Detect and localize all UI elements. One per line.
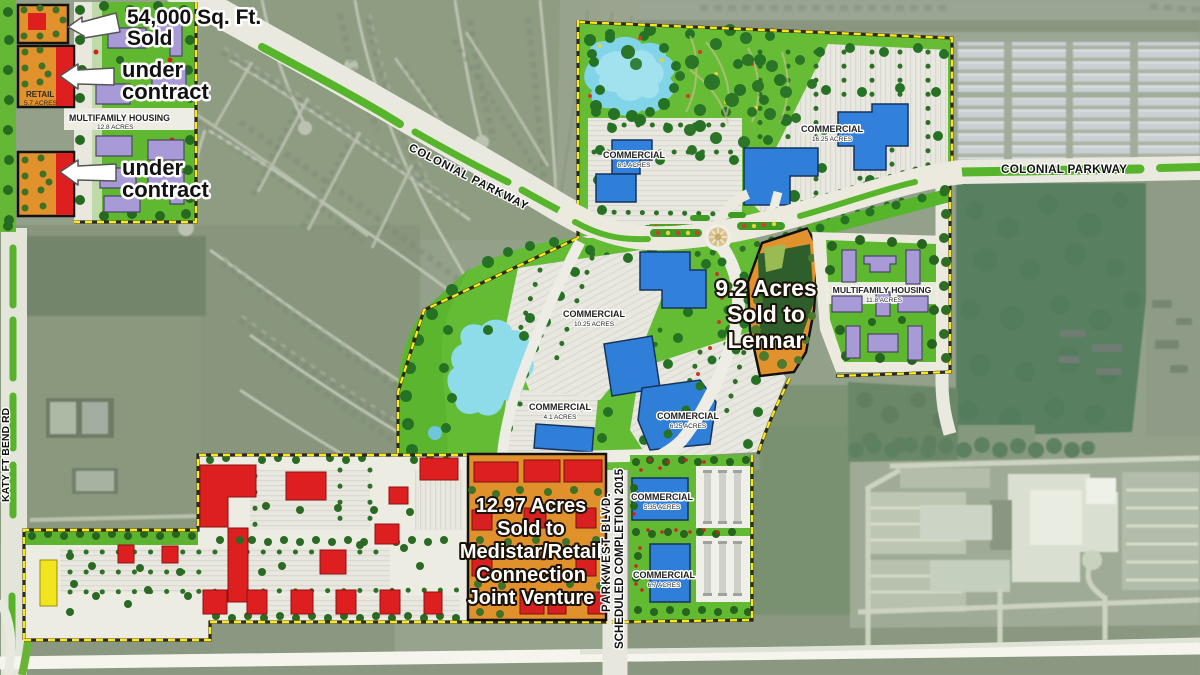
svg-text:contract: contract (122, 177, 209, 202)
svg-text:5.7 ACRES: 5.7 ACRES (24, 100, 58, 107)
svg-text:6.25 ACRES: 6.25 ACRES (670, 423, 707, 430)
svg-text:COMMERCIAL: COMMERCIAL (529, 402, 591, 412)
svg-text:12.97 Acres: 12.97 Acres (476, 495, 586, 517)
svg-text:MULTIFAMILY HOUSING: MULTIFAMILY HOUSING (833, 285, 932, 295)
svg-text:5.35 ACRES: 5.35 ACRES (644, 504, 681, 511)
svg-text:COMMERCIAL: COMMERCIAL (603, 150, 665, 160)
svg-text:9.2 Acres: 9.2 Acres (715, 275, 816, 301)
svg-text:COMMERCIAL: COMMERCIAL (801, 124, 863, 134)
svg-text:Medistar/Retail: Medistar/Retail (460, 541, 602, 563)
svg-text:Joint Venture: Joint Venture (468, 587, 595, 609)
svg-text:11.8 ACRES: 11.8 ACRES (866, 297, 903, 304)
svg-text:COMMERCIAL: COMMERCIAL (563, 309, 625, 319)
svg-text:Sold to: Sold to (727, 301, 805, 327)
svg-text:10.25 ACRES: 10.25 ACRES (574, 321, 615, 328)
svg-text:16.25 ACRES: 16.25 ACRES (812, 136, 853, 143)
svg-text:Lennar: Lennar (728, 327, 805, 353)
svg-text:COMMERCIAL: COMMERCIAL (631, 492, 693, 502)
svg-text:8.1 ACRES: 8.1 ACRES (618, 162, 652, 169)
svg-text:KATY FT BEND RD: KATY FT BEND RD (0, 407, 12, 502)
svg-text:COLONIAL PARKWAY: COLONIAL PARKWAY (1001, 162, 1127, 176)
svg-text:6.7 ACRES: 6.7 ACRES (648, 582, 682, 589)
svg-text:RETAIL: RETAIL (26, 90, 54, 99)
svg-text:12.8 ACRES: 12.8 ACRES (97, 124, 134, 131)
svg-text:MULTIFAMILY HOUSING: MULTIFAMILY HOUSING (69, 113, 170, 123)
svg-text:Connection: Connection (476, 564, 586, 586)
svg-text:COMMERCIAL: COMMERCIAL (657, 411, 719, 421)
svg-text:PARKWEST BLVD.: PARKWEST BLVD. (601, 492, 613, 612)
svg-text:Sold to: Sold to (497, 518, 565, 540)
svg-text:contract: contract (122, 79, 209, 104)
svg-text:COMMERCIAL: COMMERCIAL (633, 570, 695, 580)
svg-text:54,000 Sq. Ft.: 54,000 Sq. Ft. (127, 6, 261, 29)
svg-text:Sold: Sold (127, 27, 173, 50)
svg-text:4.1 ACRES: 4.1 ACRES (544, 414, 578, 421)
svg-text:SCHEDULED COMPLETION 2015: SCHEDULED COMPLETION 2015 (614, 468, 626, 649)
